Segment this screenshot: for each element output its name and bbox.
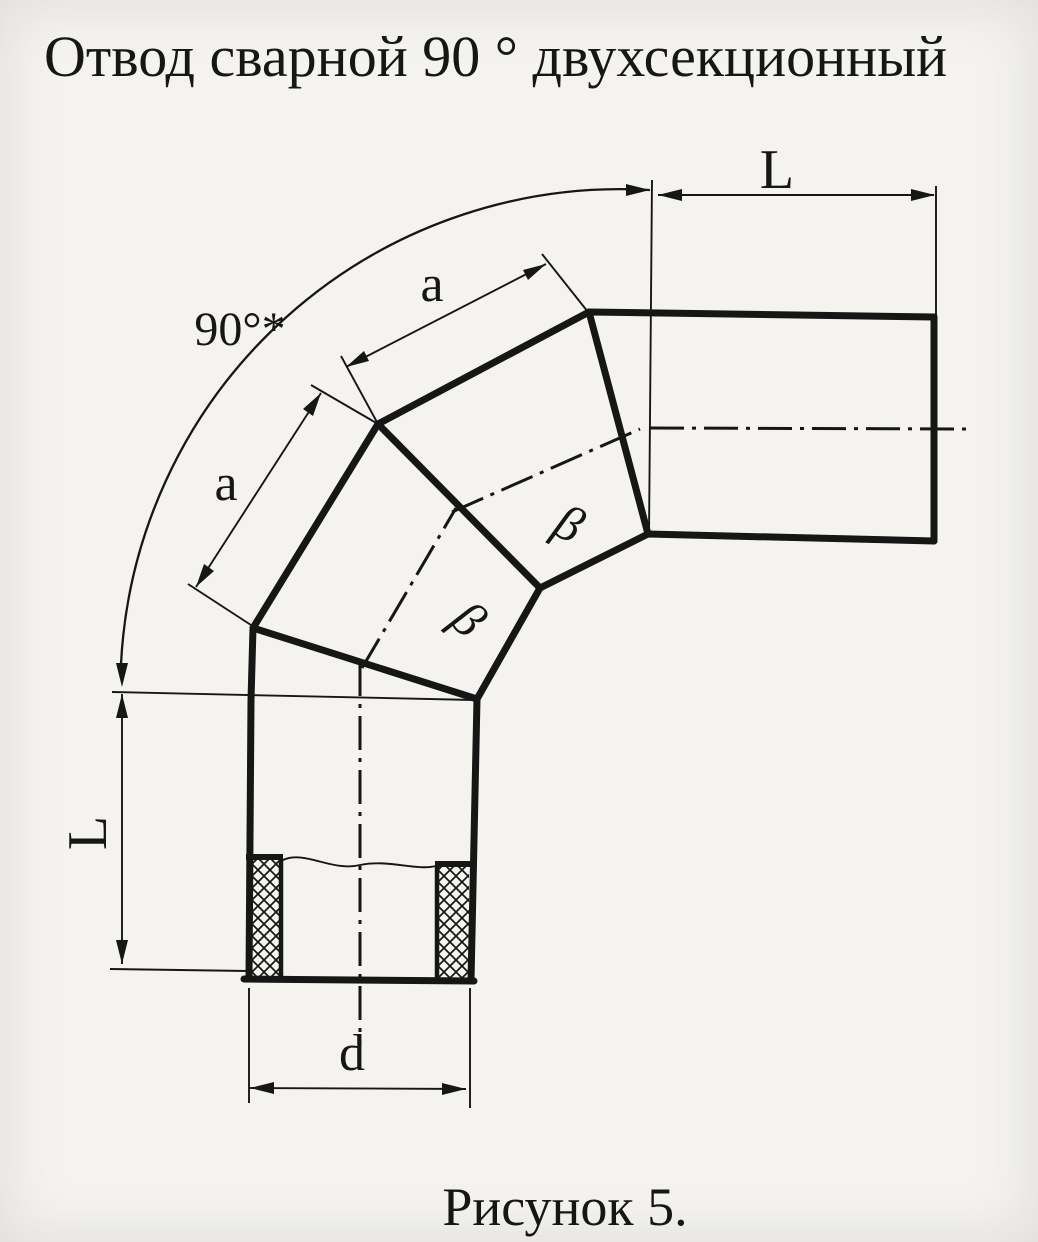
arrowhead-left-length-bottom (116, 940, 128, 964)
extension-line-left-bottom (110, 969, 248, 971)
centerline-upper-wedge (452, 429, 640, 512)
pipe-outer-contour (249, 312, 934, 977)
centerline-horizontal (650, 428, 968, 429)
wall-section-left (250, 859, 279, 976)
weld-joint-lower (253, 628, 477, 699)
dim-upper-segment: a (341, 254, 588, 424)
extension-line-upper-a-outer (542, 254, 588, 312)
arrowhead-lower-a-bottom (196, 564, 214, 587)
extension-line-bevel-plane (649, 180, 652, 536)
dim-lower-segment: a (188, 385, 378, 627)
weld-joint-middle (378, 424, 540, 588)
bevel-angle-label-upper: β (545, 492, 593, 554)
bevel-angle-label-lower: β (440, 589, 497, 648)
dimension-line-diameter (250, 1088, 466, 1089)
pipe-inner-contour (471, 534, 934, 981)
dimension-label-diameter: d (339, 1025, 365, 1082)
dimension-label-lower-segment: a (214, 455, 237, 512)
dimension-label-left-length: L (57, 816, 119, 850)
arrowhead-top-length-right (911, 189, 935, 201)
extension-line-lower-a-lower (188, 584, 254, 627)
dimension-label-angle: 90°* (194, 303, 285, 356)
break-line (283, 857, 436, 867)
arrowhead-left-length-top (116, 694, 128, 718)
scanned-page: Отвод сварной 90 ° двухсекционный (0, 0, 1038, 1242)
arrowhead-upper-a-low (346, 351, 369, 367)
elbow-drawing: Отвод сварной 90 ° двухсекционный (0, 0, 1038, 1242)
dimension-label-upper-segment: a (420, 256, 443, 313)
arrowhead-lower-a-top (303, 393, 321, 416)
arrowhead-diameter-left (250, 1082, 274, 1094)
arrowhead-diameter-right (442, 1083, 466, 1095)
arrowhead-arc-top (626, 184, 650, 196)
arrowhead-arc-left (116, 663, 128, 687)
dim-angle-arc: 90°* (116, 184, 650, 687)
figure-caption: Рисунок 5. (442, 1177, 687, 1237)
pipe-bottom-end (244, 979, 474, 981)
wall-section-right (439, 866, 469, 979)
page-title: Отвод сварной 90 ° двухсекционный (44, 24, 947, 89)
extension-line-left-top (112, 692, 474, 700)
arrowhead-top-length-left (658, 189, 682, 201)
weld-joint-upper (589, 312, 648, 534)
dim-top-length: L (649, 139, 936, 536)
dimension-label-top-length: L (760, 139, 794, 201)
pipe-body (244, 312, 934, 981)
centerline-lower-wedge (362, 508, 456, 668)
arrowhead-upper-a-high (523, 264, 546, 280)
